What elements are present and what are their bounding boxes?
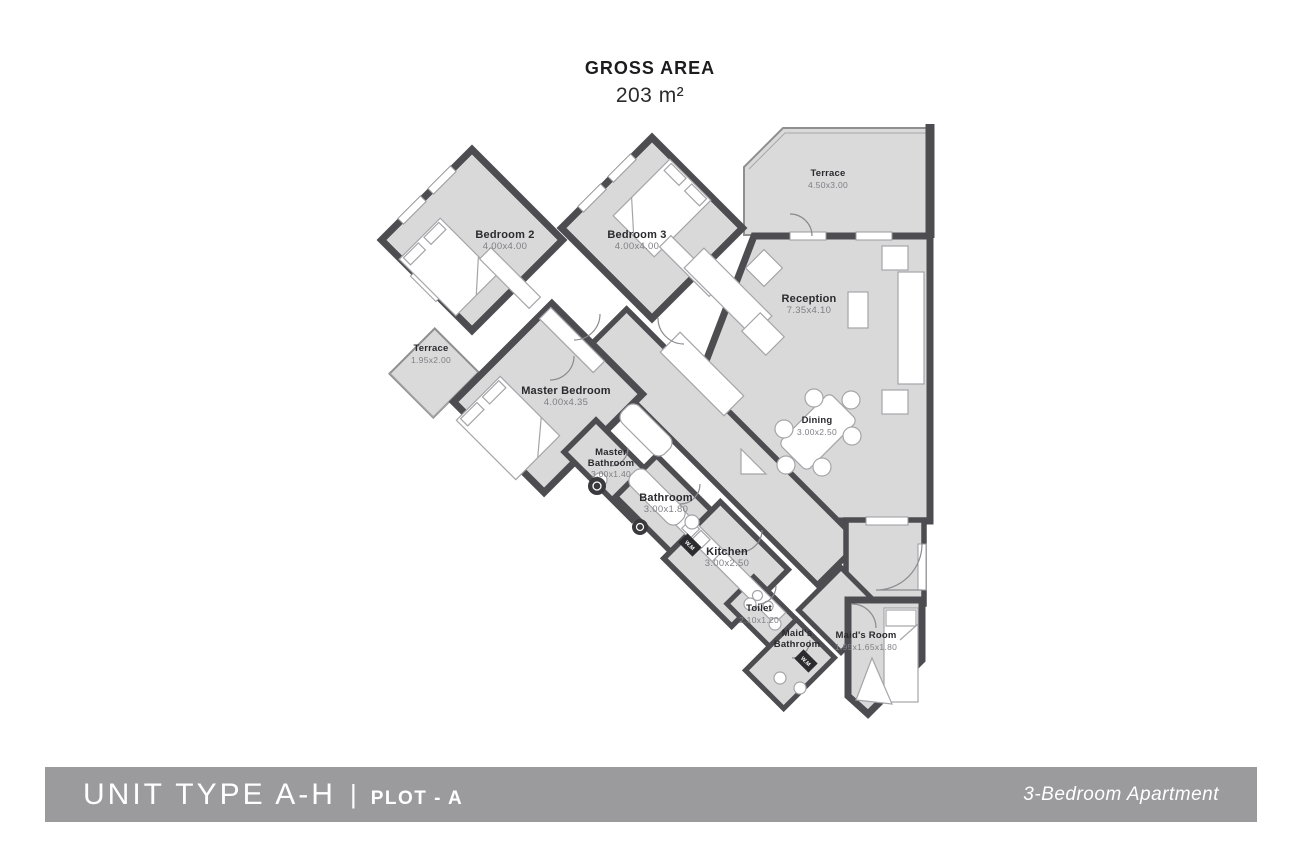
label-maids-bathroom: Maid's Bathroom [762, 629, 832, 650]
apartment-type-text: 3-Bedroom Apartment [1023, 784, 1219, 806]
label-maids-room: Maid's Room 1.95x1.65x1.80 [835, 631, 897, 652]
label-bathroom: Bathroom 3.00x1.80 [639, 492, 693, 516]
label-bedroom2: Bedroom 2 4.00x4.00 [475, 229, 534, 253]
footer-bar: UNIT TYPE A-H | PLOT - A 3-Bedroom Apart… [45, 767, 1257, 822]
bedroom2-floor [381, 149, 562, 330]
plot-text: PLOT - A [371, 788, 464, 810]
separator-bar: | [350, 779, 357, 810]
unit-type-text: UNIT TYPE A-H [83, 778, 336, 812]
label-bedroom3: Bedroom 3 4.00x4.00 [607, 229, 666, 253]
label-reception: Reception 7.35x4.10 [782, 293, 837, 317]
label-terrace-top: Terrace 4.50x3.00 [808, 169, 848, 190]
unit-type-block: UNIT TYPE A-H | PLOT - A [83, 778, 463, 812]
floor-plan-drawing: W.M W.M [0, 0, 1300, 867]
label-toilet: Toilet 2.10x1.20 [739, 604, 779, 625]
floorplan-page: W.M W.M GROSS AREA 203 m² Bedroom 2 4.00… [0, 0, 1300, 867]
gross-area-value: 203 m² [585, 84, 715, 108]
bed-maid [884, 608, 918, 702]
label-terrace-small: Terrace 1.95x2.00 [411, 344, 451, 365]
gross-area-block: GROSS AREA 203 m² [585, 58, 715, 108]
label-master-bedroom: Master Bedroom 4.00x4.35 [521, 385, 611, 409]
label-dining: Dining 3.00x2.50 [797, 416, 837, 437]
gross-area-title: GROSS AREA [585, 58, 715, 79]
label-master-bathroom: Master Bathroom 3.00x1.40 [576, 448, 646, 480]
label-kitchen: Kitchen 3.00x2.50 [705, 546, 749, 570]
